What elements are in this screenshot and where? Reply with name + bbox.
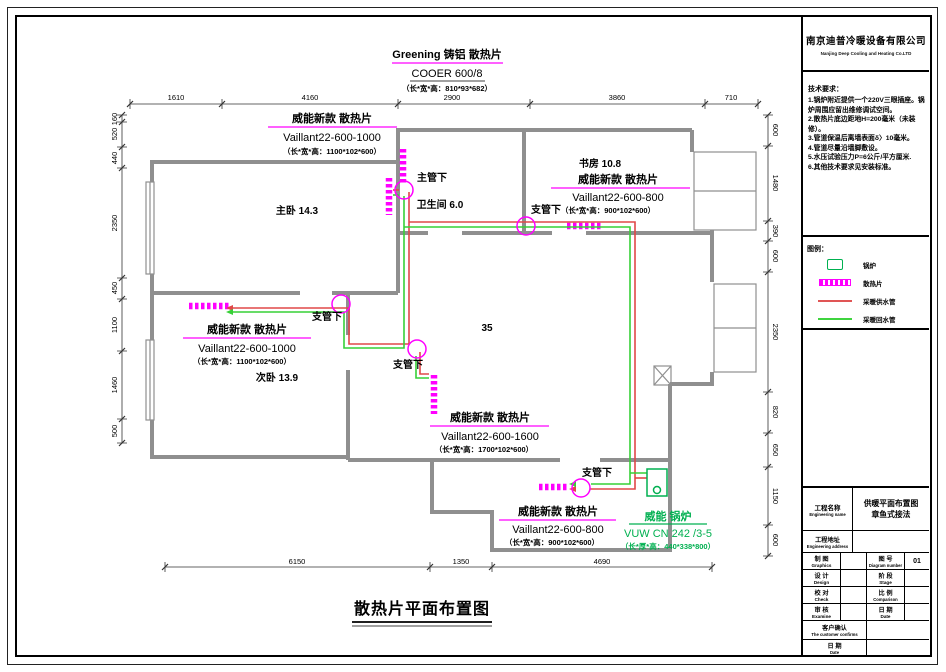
date-value: [905, 604, 929, 620]
radiator-cb-name: 威能新款 散热片: [450, 410, 530, 424]
company-section: 南京迪普冷暖设备有限公司 Nanjing Deep Cooling and He…: [803, 17, 929, 72]
boiler-model: VUW CN 242 /3-5: [624, 528, 712, 540]
design-label-en: Design: [814, 580, 829, 585]
junction-living: [408, 340, 426, 358]
project-name-line1: 供暖平面布置图: [864, 498, 919, 509]
drawing-sheet: 1610 4160 2900 3860 710 6150 1350 4690 1…: [0, 0, 946, 672]
address-label-en: Engineering address: [807, 544, 848, 549]
tech-item-5: 5.水压试验压力P=6公斤/平方厘米.: [808, 153, 925, 163]
project-name-line2: 章鱼式接法: [872, 509, 911, 520]
dim-right-1: 1480: [771, 175, 780, 192]
supply-pipe-legend-icon: [818, 300, 852, 302]
customer-confirm-label-en: The customer confirms: [811, 632, 857, 637]
legend-title: 图例：: [807, 244, 929, 254]
boiler-name: 威能 锅炉: [644, 509, 691, 523]
titleblock-row-date2: 日 期 Date: [803, 640, 929, 656]
stage-value: [905, 570, 929, 586]
radiator-cb-model: Vaillant22-600-1600: [441, 431, 539, 443]
pipe-label-main: 主管下: [417, 171, 447, 184]
pipe-label-branch-kitchen: 支管下: [581, 466, 612, 479]
dim-top-1: 4160: [302, 93, 319, 102]
check-value: [841, 587, 867, 603]
diagram-number-label-cn: 图 号: [878, 554, 892, 563]
customer-confirm-label-cn: 客户确认: [822, 623, 847, 632]
header-brand: Greening 铸铝 散热片: [392, 47, 501, 61]
dim-right-6: 650: [771, 444, 780, 457]
examine-label-cn: 审 核: [814, 605, 828, 614]
dim-left-5: 1100: [110, 317, 119, 333]
dim-top-0: 1610: [168, 93, 185, 102]
window-bays: [146, 152, 756, 420]
door-hatch: [654, 366, 671, 385]
radiator-bottom-dims: （长*宽*高：900*102*600）: [505, 537, 599, 547]
tech-requirements-section: 技术要求： 1.锅炉附近提供一个220V三眼插座。锅炉周围应留出维修调试空间。 …: [803, 72, 929, 237]
titleblock-row-design: 设 计 Design 阶 段 Stage: [803, 570, 929, 587]
radiator-tl-model: Vaillant22-600-1000: [283, 132, 381, 144]
title-panel: 南京迪普冷暖设备有限公司 Nanjing Deep Cooling and He…: [801, 17, 929, 655]
tech-item-6: 6.其他技术要求见安装标准。: [808, 163, 925, 173]
design-value: [841, 570, 867, 586]
pipe-label-branch-second: 支管下: [311, 310, 342, 323]
dim-bottom-2: 4690: [594, 557, 611, 566]
radiator-bottom-name: 威能新款 散热片: [518, 504, 598, 518]
dim-top-2: 2900: [444, 93, 461, 102]
project-label-en: Engineering name: [809, 512, 845, 517]
boiler-legend-icon: [827, 259, 843, 270]
pipe-label-branch-study: 支管下: [530, 203, 561, 216]
header-model: COOER 600/8: [412, 68, 483, 80]
dim-right-3: 600: [771, 250, 780, 263]
graphics-label-cn: 制 图: [814, 554, 828, 563]
graphics-value: [841, 553, 867, 569]
radiator-tl-name: 威能新款 散热片: [292, 111, 372, 125]
room-label-second-bedroom: 次卧 13.9: [256, 371, 299, 384]
dim-right-4: 2350: [771, 324, 780, 341]
dim-right-8: 600: [771, 534, 780, 547]
radiator-cb-dims: （长*宽*高：1700*102*600）: [435, 444, 533, 454]
check-label-cn: 校 对: [814, 588, 828, 597]
titleblock-row-check: 校 对 Check 比 例 Comparison: [803, 587, 929, 604]
header-dims: （长*宽*高：810*93*682）: [402, 83, 492, 93]
dim-bottom-0: 6150: [289, 557, 306, 566]
date-label-cn: 日 期: [878, 605, 892, 614]
dim-left-3: 2350: [110, 215, 119, 232]
pipe-label-branch-living: 支管下: [392, 358, 423, 371]
comparison-label-cn: 比 例: [878, 588, 892, 597]
title-block: 工程名称 Engineering name 供暖平面布置图 章鱼式接法 工程地址…: [803, 488, 929, 656]
room-label-bathroom: 卫生间 6.0: [417, 198, 464, 211]
check-label-en: Check: [815, 597, 829, 602]
dim-top-4: 710: [725, 93, 738, 102]
date-label-en: Date: [881, 614, 891, 619]
confirm-date-label-en: Date: [830, 650, 839, 655]
radiator-legend-icon: [820, 280, 850, 285]
legend-row-return: 采暖回水管: [807, 311, 929, 326]
legend-row-radiator: 散热片: [807, 275, 929, 290]
legend-section: 图例： 锅炉 散热片 采暖供水管 采暖回水管: [803, 237, 929, 330]
tech-item-1: 1.锅炉附近提供一个220V三眼插座。锅炉周围应留出维修调试空间。: [808, 96, 925, 115]
dim-left-4: 450: [110, 282, 119, 295]
stage-label-en: Stage: [879, 580, 892, 585]
tech-item-2: 2.散热片底边距地H=200毫米（未装修）。: [808, 115, 925, 134]
legend-label-boiler: 锅炉: [863, 260, 876, 270]
dim-bottom-1: 1350: [453, 557, 470, 566]
confirm-date-value: [867, 640, 929, 655]
dim-right-2: 390: [771, 225, 780, 238]
dim-right-0: 600: [771, 124, 780, 137]
comparison-value: [905, 587, 929, 603]
dim-right-5: 820: [771, 406, 780, 419]
radiator-ml-name: 威能新款 散热片: [207, 322, 287, 336]
legend-label-radiator: 散热片: [863, 278, 883, 288]
legend-label-return: 采暖回水管: [863, 314, 896, 324]
boiler-symbol: [647, 469, 667, 496]
legend-row-boiler: 锅炉: [807, 257, 929, 272]
room-label-master: 主卧 14.3: [276, 204, 319, 217]
company-name: 南京迪普冷暖设备有限公司: [803, 17, 929, 47]
blank-section: [803, 330, 929, 488]
radiator-study-name: 威能新款 散热片: [578, 172, 658, 186]
stage-label-cn: 阶 段: [878, 571, 892, 580]
titleblock-row-examine: 审 核 Examine 日 期 Date: [803, 604, 929, 621]
dim-right-7: 1150: [771, 488, 780, 504]
design-label-cn: 设 计: [814, 571, 828, 580]
company-name-en: Nanjing Deep Cooling and Heating Co.LTD: [803, 51, 929, 56]
return-pipe-legend-icon: [818, 318, 852, 320]
dim-left-1: 520: [110, 128, 119, 141]
graphics-label-en: Graphics: [812, 563, 832, 568]
tech-item-4: 4.管道尽量沿墙脚敷设。: [808, 144, 925, 154]
radiator-tl-dims: （长*宽*高：1100*102*600）: [283, 146, 381, 156]
dim-left-7: 500: [110, 425, 119, 438]
drawing-title: 散热片平面布置图: [354, 599, 490, 618]
radiator-ml-model: Vaillant22-600-1000: [198, 343, 296, 355]
titleblock-row-project: 工程名称 Engineering name 供暖平面布置图 章鱼式接法: [803, 488, 929, 531]
diagram-number-value: 01: [905, 553, 929, 569]
radiator-study-model: Vaillant22-600-800: [572, 192, 664, 204]
dim-top-3: 3860: [609, 93, 626, 102]
titleblock-row-confirm: 客户确认 The customer confirms: [803, 621, 929, 640]
radiator-bottom-model: Vaillant22-600-800: [512, 524, 604, 536]
tech-item-3: 3.管道保温后离墙表面δ〉10毫米。: [808, 134, 925, 144]
project-label-cn: 工程名称: [815, 502, 841, 512]
titleblock-row-graphics: 制 图 Graphics 图 号 Diagram number 01: [803, 553, 929, 570]
address-value: [853, 531, 929, 552]
customer-confirm-value: [867, 621, 929, 639]
radiator-study-dims: （长*宽*高：900*102*600）: [561, 205, 655, 215]
dim-left-2: 440: [110, 152, 119, 165]
boiler-dims: （长*厚*高：440*338*800）: [621, 541, 715, 551]
titleblock-row-address: 工程地址 Engineering address: [803, 531, 929, 553]
examine-value: [841, 604, 867, 620]
tech-title: 技术要求：: [808, 84, 925, 94]
legend-row-supply: 采暖供水管: [807, 293, 929, 308]
pipes-return: [233, 195, 647, 484]
legend-label-supply: 采暖供水管: [863, 296, 896, 306]
confirm-date-label-cn: 日 期: [827, 641, 841, 650]
room-label-living: 35: [481, 323, 493, 334]
dim-left-0: 160: [110, 113, 119, 126]
radiator-ml-dims: （长*宽*高：1100*102*600）: [193, 356, 291, 366]
dim-left-6: 1460: [110, 377, 119, 394]
examine-label-en: Examine: [812, 614, 831, 619]
address-label-cn: 工程地址: [815, 535, 840, 544]
diagram-number-label-en: Diagram number: [869, 563, 902, 568]
comparison-label-en: Comparison: [873, 597, 897, 602]
room-label-study: 书房 10.8: [579, 157, 622, 170]
